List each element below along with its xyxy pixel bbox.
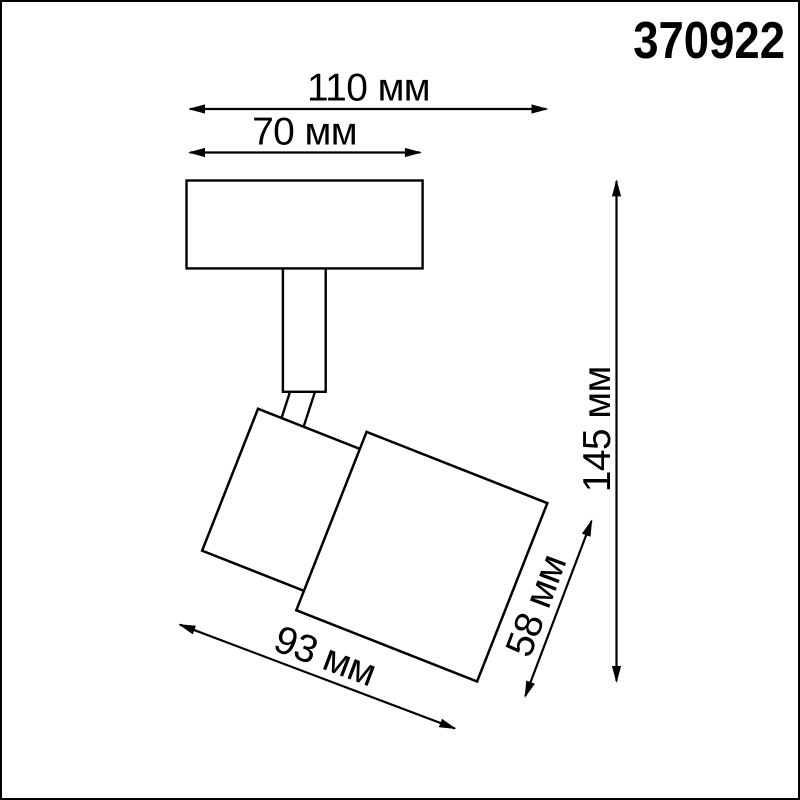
svg-text:145 мм: 145 мм — [576, 366, 619, 492]
svg-text:370922: 370922 — [633, 12, 785, 69]
svg-text:70 мм: 70 мм — [252, 111, 357, 154]
svg-text:110 мм: 110 мм — [307, 67, 430, 110]
